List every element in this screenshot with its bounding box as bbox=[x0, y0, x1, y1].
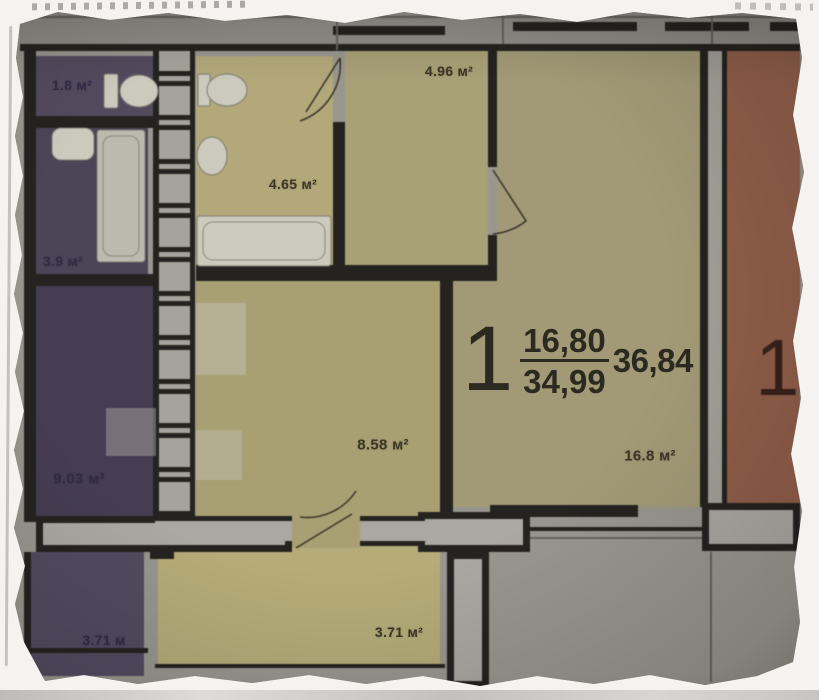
label-kitchen: 8.58 м² bbox=[357, 437, 409, 454]
living-area-value: 16,80 bbox=[520, 324, 609, 362]
torn-edge-marks-top-left bbox=[32, 1, 247, 11]
torn-edge-marks-top-right bbox=[735, 2, 813, 10]
paper-edge-line bbox=[5, 26, 12, 666]
label-bathroom: 4.65 м² bbox=[269, 176, 317, 192]
apartment-summary: 1 16,80 34,99 36,84 bbox=[462, 320, 693, 399]
label-balcony-left: 3.71 м bbox=[82, 632, 125, 648]
area-fraction: 16,80 34,99 bbox=[520, 324, 609, 398]
label-bath-left: 3.9 м² bbox=[43, 253, 83, 269]
room-labels: 1.8 м² м 3.9 м² 9.03 м² 3.71 м 4.65 м² 4… bbox=[0, 0, 819, 700]
area-without-balcony-value: 34,99 bbox=[520, 362, 609, 398]
torn-photo-scrap: 1.8 м² м 3.9 м² 9.03 м² 3.71 м 4.65 м² 4… bbox=[0, 0, 819, 700]
label-wc-left: 1.8 м² bbox=[52, 77, 92, 93]
label-hallway: 4.96 м² bbox=[425, 63, 473, 79]
label-balcony-mid: 3.71 м² bbox=[375, 624, 423, 640]
floorplan-photo: 1.8 м² м 3.9 м² 9.03 м² 3.71 м 4.65 м² 4… bbox=[0, 0, 819, 700]
apartment-number: 1 bbox=[462, 320, 510, 399]
paper-bottom-strip bbox=[0, 690, 819, 700]
total-area-value: 36,84 bbox=[613, 342, 693, 380]
label-living: 16.8 м² bbox=[624, 448, 676, 465]
adjacent-unit-number: 1 bbox=[755, 322, 800, 414]
label-room-left: 9.03 м² bbox=[53, 471, 105, 488]
